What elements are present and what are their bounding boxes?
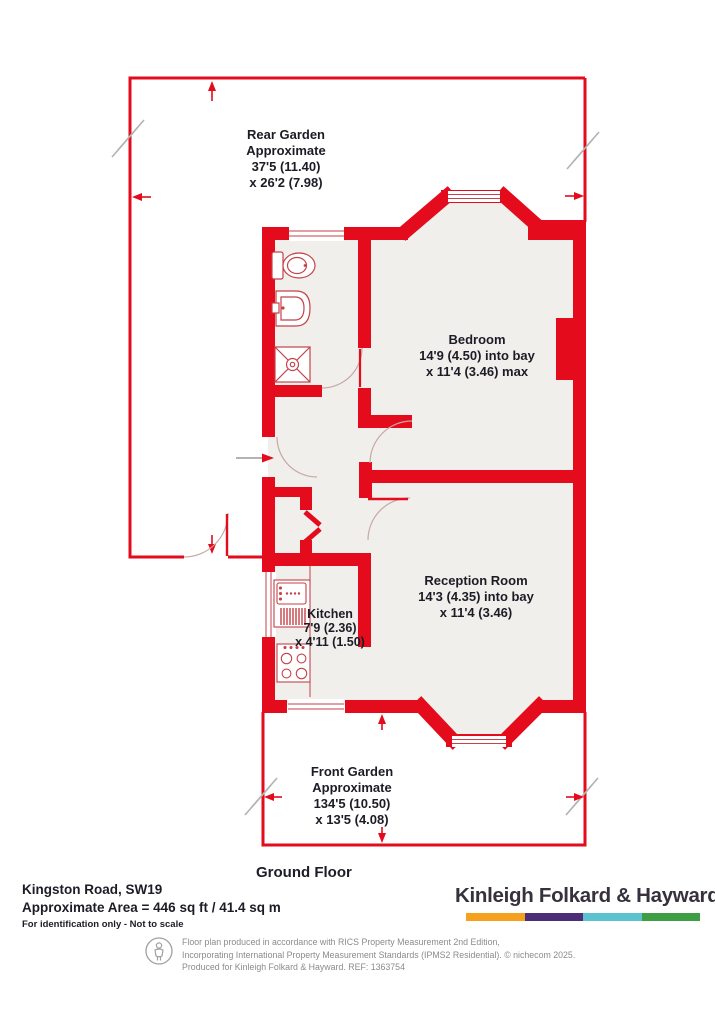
brand-bar-orange xyxy=(466,913,525,921)
kitchen-bottom-window xyxy=(288,699,344,714)
floor-area xyxy=(268,194,579,741)
front-garden: Front Garden Approximate 134'5 (10.50) x… xyxy=(245,712,598,846)
disclaimer-line-2: Incorporating International Property Mea… xyxy=(182,949,575,962)
ground-floor-label: Ground Floor xyxy=(256,864,352,880)
brand-color-bars xyxy=(466,913,700,921)
svg-text:Reception Room: Reception Room xyxy=(424,573,527,588)
front-garden-label: Front Garden Approximate 134'5 (10.50) x… xyxy=(311,764,393,827)
brand-name: Kinleigh Folkard & Hayward xyxy=(455,884,700,908)
rear-garden-break-left xyxy=(112,120,144,157)
disclaimer-text: Floor plan produced in accordance with R… xyxy=(182,936,575,974)
rear-garden-gate xyxy=(184,513,228,557)
svg-text:x 11'4 (3.46): x 11'4 (3.46) xyxy=(440,605,512,620)
bathroom-window xyxy=(289,226,344,241)
svg-text:Kitchen: Kitchen xyxy=(307,607,353,621)
property-area: Approximate Area = 446 sq ft / 41.4 sq m xyxy=(22,899,281,917)
property-address: Kingston Road, SW19 xyxy=(22,881,281,899)
svg-text:x 26'2 (7.98): x 26'2 (7.98) xyxy=(249,175,322,190)
property-summary: Kingston Road, SW19 Approximate Area = 4… xyxy=(22,881,281,932)
identification-note: For identification only - Not to scale xyxy=(22,918,281,932)
drainer-hatch xyxy=(281,608,305,625)
brand-block: Kinleigh Folkard & Hayward xyxy=(455,884,700,921)
disclaimer-block: Floor plan produced in accordance with R… xyxy=(144,936,575,974)
svg-text:Rear Garden: Rear Garden xyxy=(247,127,325,142)
svg-text:x 4'11 (1.50): x 4'11 (1.50) xyxy=(295,635,365,649)
svg-text:7'9 (2.36): 7'9 (2.36) xyxy=(303,621,356,635)
bathroom-fixtures xyxy=(272,252,315,382)
front-garden-outline xyxy=(262,712,587,846)
basin-icon xyxy=(272,291,310,326)
disclaimer-line-3: Produced for Kinleigh Folkard & Hayward.… xyxy=(182,961,575,974)
svg-text:x 11'4 (3.46) max: x 11'4 (3.46) max xyxy=(426,364,529,379)
chimney-breast xyxy=(556,318,573,380)
reception-bay-window xyxy=(452,736,506,747)
svg-text:Bedroom: Bedroom xyxy=(448,332,505,347)
rear-garden-label: Rear Garden Approximate 37'5 (11.40) x 2… xyxy=(246,127,325,190)
rear-garden-break-right xyxy=(567,132,599,169)
brand-bar-green xyxy=(642,913,701,921)
stove-icon xyxy=(277,644,310,682)
svg-text:14'3 (4.35) into bay: 14'3 (4.35) into bay xyxy=(418,589,535,604)
toilet-icon xyxy=(272,252,315,279)
sink-unit-icon xyxy=(274,580,310,627)
svg-text:37'5 (11.40): 37'5 (11.40) xyxy=(252,159,321,174)
shower-icon xyxy=(275,347,310,382)
building: Bedroom 14'9 (4.50) into bay x 11'4 (3.4… xyxy=(236,190,586,747)
svg-text:x 13'5 (4.08): x 13'5 (4.08) xyxy=(315,812,388,827)
floor-plan: Rear Garden Approximate 37'5 (11.40) x 2… xyxy=(0,0,715,880)
brand-bar-purple xyxy=(525,913,584,921)
svg-text:Approximate: Approximate xyxy=(312,780,391,795)
svg-text:14'9 (4.50) into bay: 14'9 (4.50) into bay xyxy=(419,348,536,363)
surveyor-icon xyxy=(144,936,174,966)
bedroom-bay-window xyxy=(448,191,500,202)
svg-text:Front Garden: Front Garden xyxy=(311,764,393,779)
brand-bar-teal xyxy=(583,913,642,921)
svg-text:Approximate: Approximate xyxy=(246,143,325,158)
disclaimer-line-1: Floor plan produced in accordance with R… xyxy=(182,936,575,949)
svg-text:134'5 (10.50): 134'5 (10.50) xyxy=(314,796,391,811)
